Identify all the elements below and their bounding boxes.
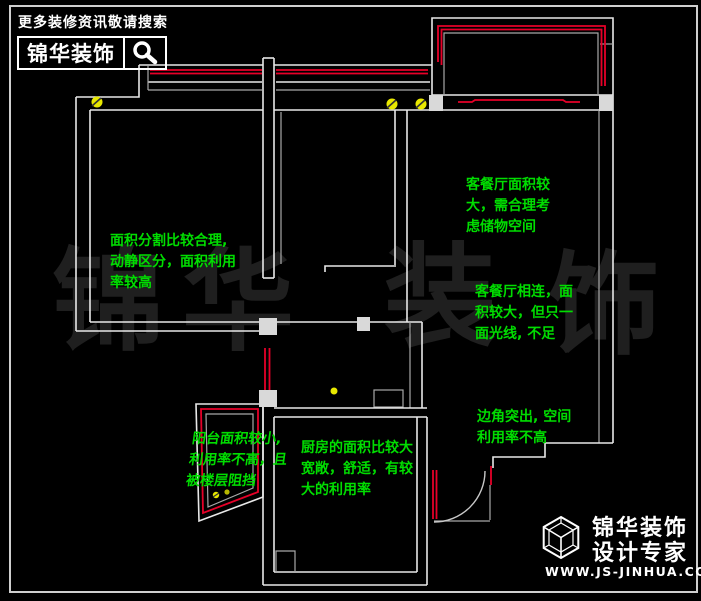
- wall-piers: [259, 95, 613, 407]
- annotation-line: 宽敞，舒适，有较: [301, 459, 413, 480]
- annotation-line: 边角突出, 空间: [477, 407, 571, 428]
- annotation-line: 厨房的面积比较大: [301, 438, 413, 459]
- screw-symbol: [416, 99, 427, 110]
- annotation-living-mid: 客餐厅相连，面 积较大，但只一 面光线, 不足: [475, 282, 573, 345]
- annotation-balcony: 阳台面积较小, 利用率不高，且 被楼层阻挡: [185, 429, 292, 492]
- footer-brand-line2: 设计专家: [592, 541, 688, 566]
- annotation-line: 动静区分，面积利用: [110, 252, 236, 273]
- annotation-corner: 边角突出, 空间 利用率不高: [477, 407, 571, 449]
- screw-symbol: [92, 97, 103, 108]
- footer-website: WWW.JS-JINHUA.COM: [545, 564, 701, 579]
- annotation-line: 面光线, 不足: [475, 324, 573, 345]
- screw-symbol: [387, 99, 398, 110]
- annotation-line: 率较高: [110, 273, 236, 294]
- footer-brand: 锦华装饰 设计专家: [592, 516, 688, 566]
- annotation-line: 大的利用率: [301, 480, 413, 501]
- cube-logo-icon: [540, 515, 582, 563]
- floorplan-drawing: [0, 0, 701, 601]
- floorplan-image: 锦 华 装 饰: [0, 0, 701, 601]
- header-slogan: 更多装修资讯敬请搜索: [18, 12, 168, 32]
- magnifier-icon: [125, 40, 165, 66]
- annotation-line: 利用率不高: [477, 428, 571, 449]
- annotation-line: 积较大，但只一: [475, 303, 573, 324]
- door-swing-arc: [434, 471, 485, 522]
- annotation-line: 被楼层阻挡: [185, 471, 286, 492]
- header-brand-searchbox: 锦华装饰: [17, 36, 167, 70]
- annotation-line: 虑储物空间: [466, 217, 550, 238]
- annotation-line: 客餐厅相连，面: [475, 282, 573, 303]
- annotation-line: 利用率不高，且: [188, 450, 289, 471]
- entry-door: [433, 466, 491, 522]
- annotation-line: 面积分割比较合理,: [110, 231, 236, 252]
- header-brand-name: 锦华装饰: [19, 38, 123, 68]
- annotation-kitchen: 厨房的面积比较大 宽敞，舒适，有较 大的利用率: [301, 438, 413, 501]
- annotation-line: 客餐厅面积较: [466, 175, 550, 196]
- annotation-line: 大，需合理考: [466, 196, 550, 217]
- footer-brand-line1: 锦华装饰: [592, 516, 688, 541]
- annotation-left-room: 面积分割比较合理, 动静区分，面积利用 率较高: [110, 231, 236, 294]
- screw-symbol: [213, 492, 219, 498]
- annotation-line: 阳台面积较小,: [190, 429, 291, 450]
- annotation-living-top: 客餐厅面积较 大，需合理考 虑储物空间: [466, 175, 550, 238]
- small-light-symbol: [331, 388, 338, 395]
